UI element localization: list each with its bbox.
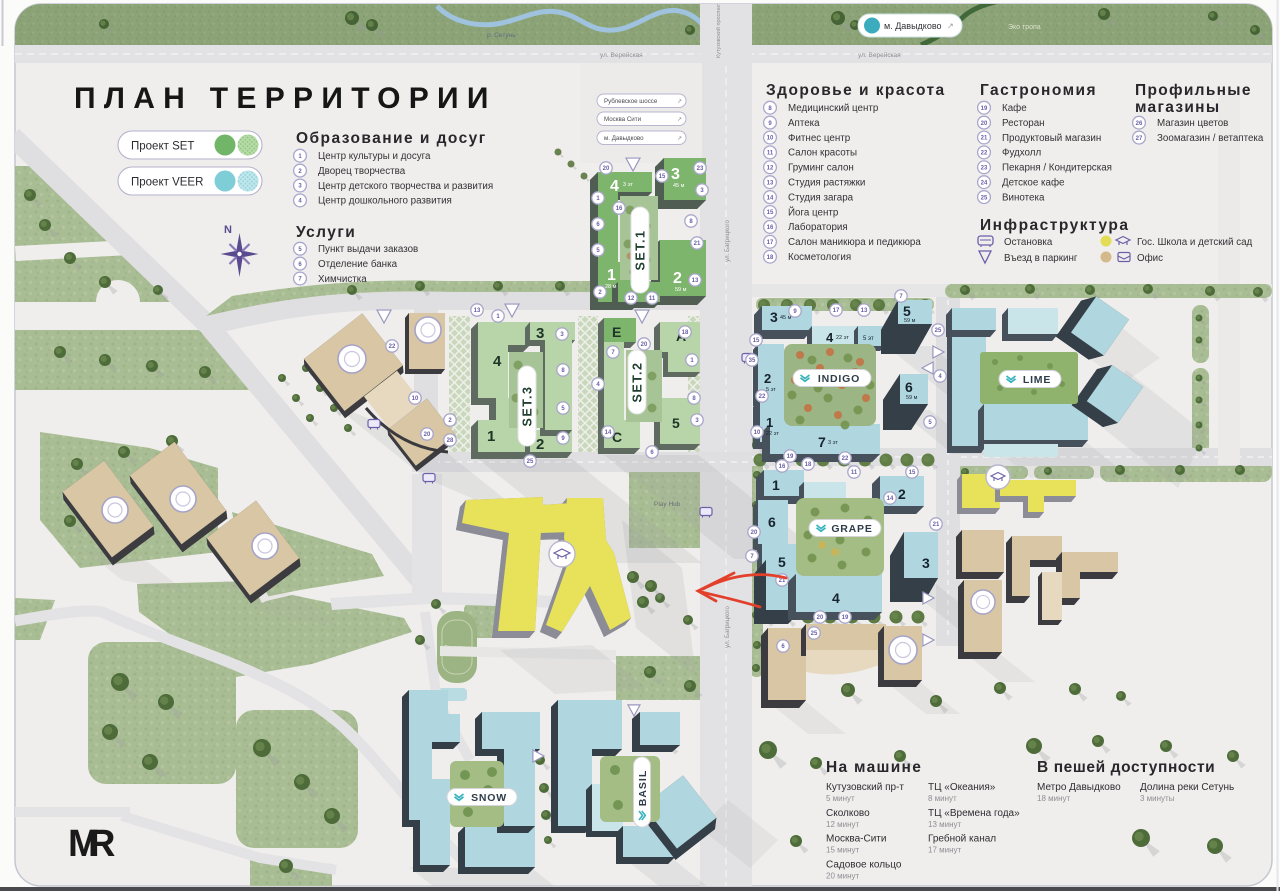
- svg-text:25: 25: [811, 631, 818, 637]
- svg-text:22 эт: 22 эт: [836, 335, 849, 341]
- svg-text:Инфраструктура: Инфраструктура: [980, 217, 1130, 234]
- svg-text:13: 13: [767, 180, 774, 186]
- svg-text:13: 13: [692, 278, 699, 284]
- svg-text:Салон красоты: Салон красоты: [788, 148, 857, 159]
- svg-text:Садовое кольцо: Садовое кольцо: [826, 859, 902, 870]
- svg-text:2: 2: [764, 371, 771, 386]
- svg-text:ТЦ «Океания»: ТЦ «Океания»: [928, 782, 996, 793]
- svg-text:Долина реки Сетунь: Долина реки Сетунь: [1140, 782, 1234, 793]
- svg-text:4: 4: [826, 330, 834, 345]
- svg-text:↗: ↗: [677, 117, 682, 123]
- svg-text:12: 12: [628, 296, 635, 302]
- svg-text:N: N: [224, 224, 232, 236]
- svg-text:2: 2: [898, 486, 906, 502]
- svg-text:5: 5: [903, 303, 911, 319]
- svg-text:Пункт выдачи заказов: Пункт выдачи заказов: [318, 244, 418, 255]
- svg-text:3: 3: [770, 309, 778, 325]
- svg-text:↗: ↗: [947, 22, 954, 31]
- svg-text:Гос. Школа и детский сад: Гос. Школа и детский сад: [1137, 237, 1253, 248]
- svg-text:27: 27: [1136, 136, 1143, 142]
- svg-text:4: 4: [610, 178, 619, 195]
- svg-text:3 эт: 3 эт: [828, 440, 838, 446]
- svg-text:13: 13: [474, 308, 481, 314]
- svg-text:16: 16: [767, 225, 774, 231]
- svg-text:INDIGO: INDIGO: [818, 373, 860, 385]
- svg-text:Груминг салон: Груминг салон: [788, 163, 854, 174]
- svg-text:Въезд в паркинг: Въезд в паркинг: [1004, 253, 1078, 264]
- svg-text:↗: ↗: [677, 99, 682, 105]
- svg-text:Детское кафе: Детское кафе: [1002, 178, 1065, 189]
- svg-text:10: 10: [412, 396, 419, 402]
- svg-text:21: 21: [694, 241, 701, 247]
- svg-text:15: 15: [909, 470, 916, 476]
- svg-text:SET.1: SET.1: [633, 230, 647, 271]
- svg-text:SET.3: SET.3: [520, 386, 534, 427]
- svg-text:19: 19: [787, 454, 794, 460]
- svg-text:1: 1: [487, 428, 495, 445]
- svg-text:ул. Багрицкого: ул. Багрицкого: [724, 605, 731, 648]
- svg-text:14: 14: [887, 496, 894, 502]
- svg-text:2: 2: [536, 436, 544, 453]
- svg-text:25: 25: [981, 195, 988, 201]
- svg-text:15: 15: [659, 174, 666, 180]
- svg-text:Кутузовский проспект: Кутузовский проспект: [715, 2, 722, 58]
- svg-text:59 м: 59 м: [906, 395, 918, 401]
- svg-text:23: 23: [697, 166, 704, 172]
- svg-text:Услуги: Услуги: [296, 224, 356, 241]
- svg-text:Ресторан: Ресторан: [1002, 118, 1045, 129]
- svg-text:SET.2: SET.2: [630, 362, 644, 403]
- svg-text:Косметология: Косметология: [788, 252, 851, 263]
- svg-text:3 эт: 3 эт: [623, 182, 633, 188]
- svg-text:Продуктовый магазин: Продуктовый магазин: [1002, 133, 1101, 144]
- svg-text:Сколково: Сколково: [826, 808, 870, 819]
- svg-text:17: 17: [767, 240, 774, 246]
- svg-text:21: 21: [933, 522, 940, 528]
- svg-text:20: 20: [981, 121, 988, 127]
- svg-text:Зоомагазин / ветаптека: Зоомагазин / ветаптека: [1157, 133, 1264, 144]
- svg-text:Гребной канал: Гребной канал: [928, 833, 996, 845]
- svg-text:Метро Давыдково: Метро Давыдково: [1037, 782, 1121, 793]
- svg-text:м. Давыдково: м. Давыдково: [604, 135, 644, 142]
- svg-text:На машине: На машине: [826, 759, 922, 776]
- svg-text:22: 22: [759, 394, 766, 400]
- svg-text:Кафе: Кафе: [1002, 103, 1027, 114]
- svg-text:Проект VEER: Проект VEER: [131, 177, 203, 189]
- svg-text:18: 18: [805, 462, 812, 468]
- svg-text:↗: ↗: [677, 136, 682, 142]
- svg-text:18: 18: [682, 330, 689, 336]
- svg-text:Фудхолл: Фудхолл: [1002, 148, 1041, 159]
- svg-text:Здоровье и красота: Здоровье и красота: [766, 82, 946, 99]
- svg-text:20: 20: [641, 342, 648, 348]
- svg-text:45 м: 45 м: [673, 183, 685, 189]
- svg-text:16: 16: [779, 464, 786, 470]
- svg-text:20 минут: 20 минут: [826, 871, 860, 880]
- svg-text:25: 25: [935, 328, 942, 334]
- svg-text:26: 26: [1136, 121, 1143, 127]
- svg-text:3: 3: [536, 325, 544, 342]
- svg-text:24: 24: [981, 180, 988, 186]
- svg-text:23: 23: [981, 165, 988, 171]
- svg-text:22: 22: [389, 344, 396, 350]
- svg-text:Москва-Сити: Москва-Сити: [826, 834, 886, 845]
- svg-text:15: 15: [767, 210, 774, 216]
- svg-text:22 эт: 22 эт: [766, 431, 779, 437]
- svg-text:6: 6: [768, 514, 776, 530]
- svg-text:Дворец творчества: Дворец творчества: [318, 166, 406, 177]
- svg-text:Рублевское шоссе: Рублевское шоссе: [604, 98, 658, 105]
- svg-text:15: 15: [753, 338, 760, 344]
- svg-text:20: 20: [603, 166, 610, 172]
- svg-text:25: 25: [527, 459, 534, 465]
- svg-text:Москва Сити: Москва Сити: [604, 116, 642, 123]
- svg-text:Студия загара: Студия загара: [788, 192, 854, 203]
- svg-text:8 минут: 8 минут: [928, 794, 957, 803]
- svg-text:21: 21: [981, 136, 988, 142]
- svg-text:BASIL: BASIL: [637, 770, 649, 807]
- svg-text:м. Давыдково: м. Давыдково: [884, 21, 942, 31]
- svg-text:Эко тропа: Эко тропа: [1008, 24, 1041, 31]
- svg-text:3 минуты: 3 минуты: [1140, 794, 1175, 803]
- svg-text:35: 35: [749, 358, 756, 364]
- svg-text:5 минут: 5 минут: [826, 794, 855, 803]
- svg-text:ул. Багрицкого: ул. Багрицкого: [724, 219, 731, 262]
- svg-text:18: 18: [767, 255, 774, 261]
- svg-text:1: 1: [772, 477, 780, 493]
- svg-text:59 м: 59 м: [675, 287, 687, 293]
- svg-text:Профильные: Профильные: [1135, 82, 1252, 99]
- svg-text:5 эт: 5 эт: [863, 336, 874, 342]
- svg-text:2: 2: [673, 270, 682, 287]
- svg-text:E: E: [612, 324, 621, 340]
- svg-text:5: 5: [672, 415, 680, 431]
- svg-text:7: 7: [818, 434, 826, 450]
- svg-text:15 минут: 15 минут: [826, 846, 860, 855]
- svg-text:16: 16: [616, 206, 623, 212]
- svg-text:5: 5: [778, 554, 786, 570]
- svg-text:1: 1: [607, 267, 616, 284]
- svg-text:45 м: 45 м: [780, 315, 792, 321]
- svg-text:Йога центр: Йога центр: [788, 206, 839, 218]
- svg-text:Остановка: Остановка: [1004, 237, 1053, 248]
- svg-text:6: 6: [905, 379, 913, 395]
- svg-text:В пешей доступности: В пешей доступности: [1037, 759, 1215, 776]
- svg-text:17 минут: 17 минут: [928, 846, 962, 855]
- svg-text:LIME: LIME: [1023, 374, 1051, 386]
- svg-text:28 м: 28 м: [605, 284, 617, 290]
- svg-text:3: 3: [671, 166, 680, 183]
- svg-text:Проект SET: Проект SET: [131, 141, 194, 153]
- svg-text:11: 11: [767, 151, 774, 157]
- svg-text:Магазин цветов: Магазин цветов: [1157, 118, 1228, 129]
- svg-text:ул. Верейская: ул. Верейская: [600, 51, 643, 59]
- svg-text:Лаборатория: Лаборатория: [788, 222, 848, 233]
- svg-text:1: 1: [766, 415, 773, 430]
- svg-text:59 м: 59 м: [904, 318, 916, 324]
- svg-text:Фитнес центр: Фитнес центр: [788, 133, 851, 144]
- svg-text:ПЛАН ТЕРРИТОРИИ: ПЛАН ТЕРРИТОРИИ: [74, 82, 497, 115]
- svg-text:12: 12: [767, 165, 774, 171]
- svg-text:магазины: магазины: [1135, 99, 1220, 116]
- svg-text:Салон маникюра и педикюра: Салон маникюра и педикюра: [788, 237, 921, 248]
- svg-text:Аптека: Аптека: [788, 118, 820, 129]
- svg-text:18 минут: 18 минут: [1037, 794, 1071, 803]
- svg-text:13: 13: [861, 308, 868, 314]
- svg-text:14: 14: [767, 195, 774, 201]
- svg-text:Пекарня / Кондитерская: Пекарня / Кондитерская: [1002, 163, 1112, 174]
- svg-text:Центр дошкольного развития: Центр дошкольного развития: [318, 196, 452, 207]
- svg-text:22: 22: [981, 151, 988, 157]
- svg-text:19: 19: [981, 106, 988, 112]
- svg-text:ТЦ «Времена года»: ТЦ «Времена года»: [928, 808, 1020, 819]
- svg-text:Студия растяжки: Студия растяжки: [788, 178, 865, 189]
- svg-text:GRAPE: GRAPE: [831, 523, 872, 535]
- svg-text:10: 10: [754, 430, 761, 436]
- svg-text:Отделение банка: Отделение банка: [318, 259, 398, 270]
- svg-text:22: 22: [842, 456, 849, 462]
- svg-text:Химчистка: Химчистка: [318, 274, 367, 285]
- svg-text:28: 28: [447, 438, 454, 444]
- svg-text:17: 17: [833, 308, 840, 314]
- svg-text:4: 4: [832, 590, 840, 606]
- svg-text:20: 20: [817, 615, 824, 621]
- svg-text:R: R: [88, 823, 115, 865]
- svg-text:11: 11: [649, 296, 656, 302]
- svg-text:20: 20: [751, 530, 758, 536]
- svg-text:ул. Верейская: ул. Верейская: [858, 51, 901, 59]
- svg-text:Центр культуры и досуга: Центр культуры и досуга: [318, 151, 431, 162]
- svg-text:10: 10: [767, 136, 774, 142]
- svg-text:Офис: Офис: [1137, 253, 1163, 264]
- svg-text:20: 20: [424, 432, 431, 438]
- svg-text:Винотека: Винотека: [1002, 192, 1045, 203]
- svg-text:Play Hub: Play Hub: [654, 501, 681, 508]
- svg-text:4: 4: [493, 353, 502, 370]
- svg-text:3: 3: [922, 555, 930, 571]
- svg-text:14: 14: [605, 430, 612, 436]
- svg-text:19: 19: [842, 615, 849, 621]
- svg-text:13 минут: 13 минут: [928, 820, 962, 829]
- svg-text:12 минут: 12 минут: [826, 820, 860, 829]
- svg-text:Образование и досуг: Образование и досуг: [296, 130, 487, 147]
- svg-text:Гастрономия: Гастрономия: [980, 82, 1097, 99]
- svg-text:11: 11: [851, 470, 858, 476]
- svg-text:Центр детского творчества и ра: Центр детского творчества и развития: [318, 181, 493, 192]
- svg-text:Кутузовский пр-т: Кутузовский пр-т: [826, 782, 904, 793]
- svg-text:Медицинский центр: Медицинский центр: [788, 103, 879, 114]
- svg-text:р. Сетунь: р. Сетунь: [487, 32, 516, 39]
- svg-text:SNOW: SNOW: [471, 792, 507, 804]
